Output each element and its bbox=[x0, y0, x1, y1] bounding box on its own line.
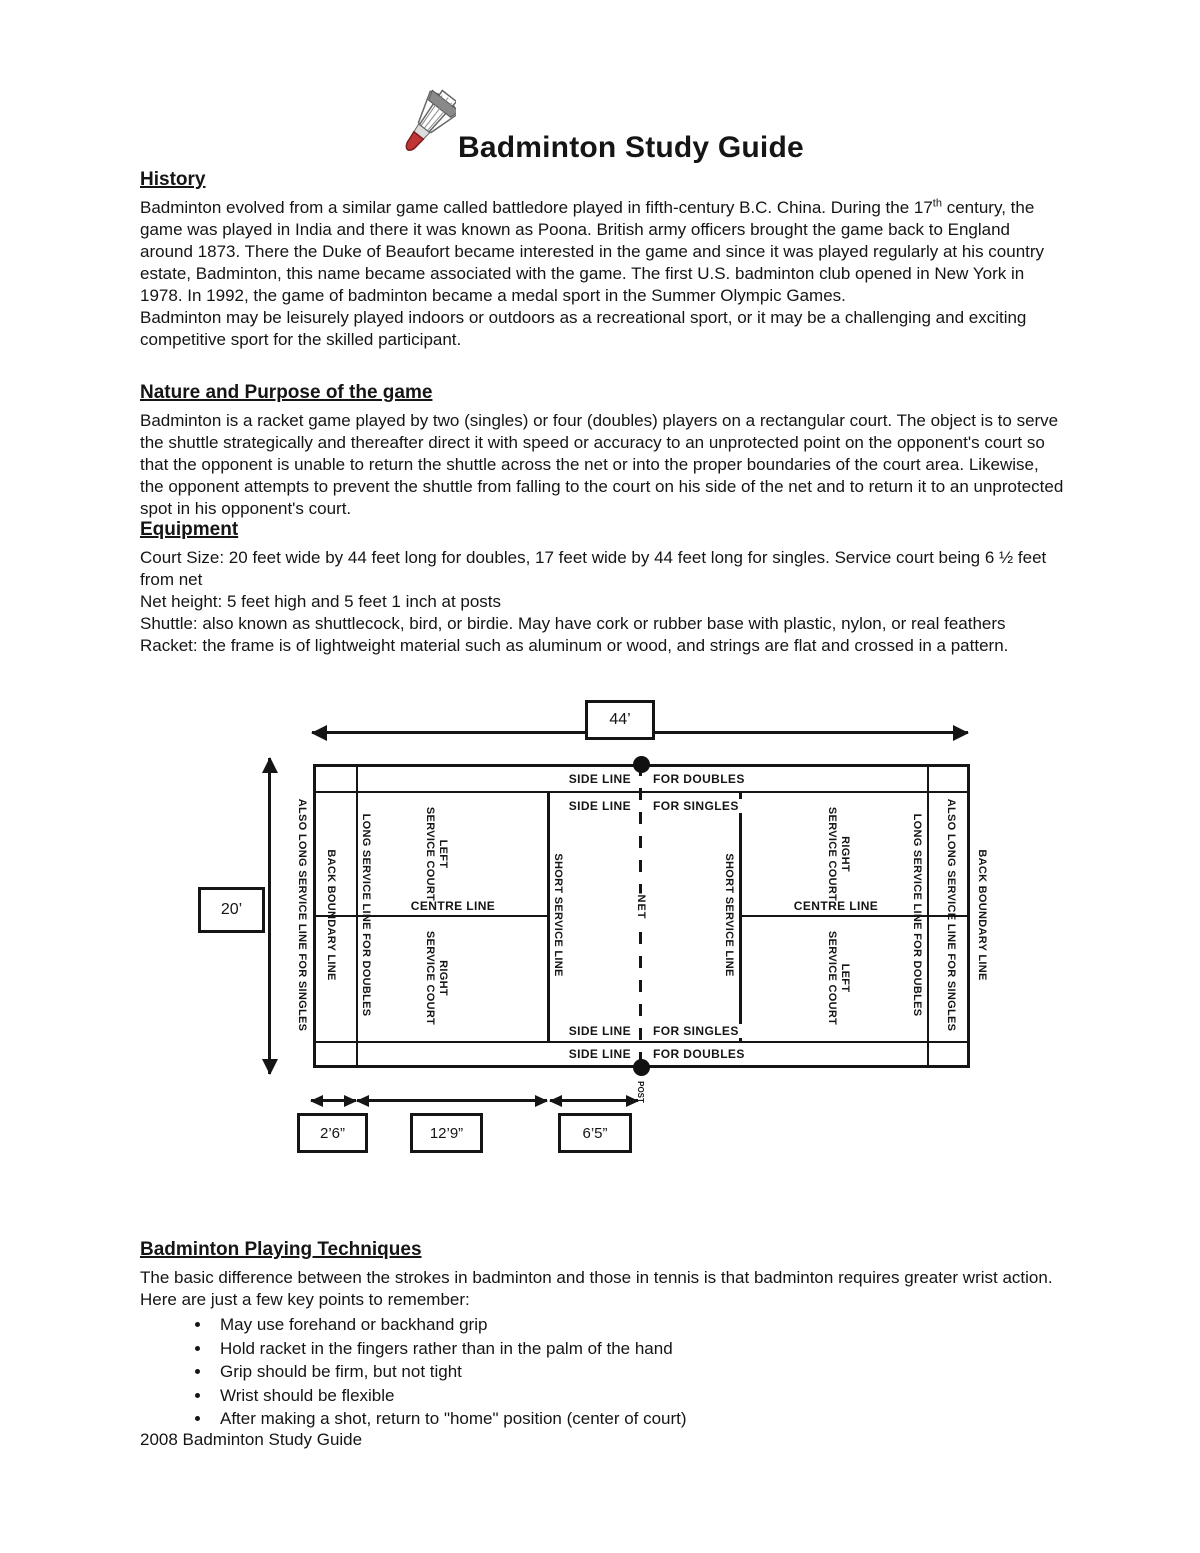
label-for-doubles-top: FOR DOUBLES bbox=[650, 772, 748, 786]
document-page: Badminton Study Guide History Badminton … bbox=[0, 0, 1200, 1553]
net-line bbox=[639, 764, 642, 1068]
equipment-shuttle: Shuttle: also known as shuttlecock, bird… bbox=[140, 613, 1064, 635]
technique-item: After making a shot, return to "home" po… bbox=[212, 1407, 1064, 1431]
label-also-long-service-right: ALSO LONG SERVICE LINE FOR SINGLES bbox=[945, 799, 957, 1031]
history-superscript: th bbox=[933, 197, 942, 209]
label-side-line-doubles-top: SIDE LINE bbox=[566, 772, 634, 786]
width-dimension-box: 20’ bbox=[198, 887, 265, 933]
service-length-dimension-arrow bbox=[357, 1099, 547, 1102]
label-service-court-word: SERVICE COURT bbox=[825, 807, 838, 901]
centre-line-left bbox=[313, 915, 549, 917]
history-paragraph-1: Badminton evolved from a similar game ca… bbox=[140, 197, 1064, 307]
label-also-long-service-left: ALSO LONG SERVICE LINE FOR SINGLES bbox=[296, 799, 308, 1031]
front-service-dimension-box: 6’5” bbox=[558, 1113, 632, 1153]
label-net: NET bbox=[630, 894, 652, 921]
net-post-top bbox=[633, 756, 650, 773]
long-service-line-doubles-right bbox=[927, 764, 929, 1068]
label-back-boundary-left: BACK BOUNDARY LINE bbox=[325, 849, 337, 980]
label-service-court-word: SERVICE COURT bbox=[825, 931, 838, 1025]
technique-item: Grip should be firm, but not tight bbox=[212, 1360, 1064, 1384]
technique-item: May use forehand or backhand grip bbox=[212, 1313, 1064, 1337]
section-equipment: Equipment Court Size: 20 feet wide by 44… bbox=[140, 518, 1064, 657]
label-left-service-court-lower: LEFT SERVICE COURT bbox=[825, 931, 851, 1025]
label-right-service-court-upper: RIGHT SERVICE COURT bbox=[825, 807, 851, 901]
nature-heading: Nature and Purpose of the game bbox=[140, 381, 1064, 405]
label-side-line-singles-top: SIDE LINE bbox=[566, 799, 634, 813]
label-left-word: LEFT bbox=[436, 807, 449, 901]
label-post: POST bbox=[636, 1081, 645, 1103]
label-long-service-right: LONG SERVICE LINE FOR DOUBLES bbox=[911, 814, 923, 1017]
length-dimension-value: 44’ bbox=[609, 711, 630, 729]
service-length-dimension-value: 12’9” bbox=[430, 1125, 463, 1142]
history-paragraph-2: Badminton may be leisurely played indoor… bbox=[140, 307, 1064, 351]
label-left-service-court-upper: LEFT SERVICE COURT bbox=[423, 807, 449, 901]
label-right-word: RIGHT bbox=[436, 931, 449, 1025]
net-post-bottom bbox=[633, 1059, 650, 1076]
service-length-dimension-box: 12’9” bbox=[410, 1113, 483, 1153]
technique-item: Hold racket in the fingers rather than i… bbox=[212, 1337, 1064, 1361]
back-alley-dimension-value: 2’6” bbox=[320, 1125, 345, 1142]
section-techniques: Badminton Playing Techniques The basic d… bbox=[140, 1238, 1064, 1431]
label-for-singles-bottom: FOR SINGLES bbox=[650, 1024, 742, 1038]
history-p1-text: Badminton evolved from a similar game ca… bbox=[140, 198, 933, 217]
side-line-singles-bottom bbox=[313, 1041, 970, 1043]
label-side-line-doubles-bottom: SIDE LINE bbox=[566, 1047, 634, 1061]
label-short-service-right: SHORT SERVICE LINE bbox=[723, 853, 735, 976]
nature-paragraph: Badminton is a racket game played by two… bbox=[140, 410, 1064, 520]
equipment-heading: Equipment bbox=[140, 518, 1064, 542]
label-short-service-left: SHORT SERVICE LINE bbox=[552, 853, 564, 976]
label-service-court-word: SERVICE COURT bbox=[423, 931, 436, 1025]
short-service-line-right bbox=[739, 791, 742, 1043]
shuttlecock-icon bbox=[396, 84, 456, 173]
front-service-dimension-value: 6’5” bbox=[582, 1125, 607, 1142]
label-left-word: LEFT bbox=[838, 931, 851, 1025]
history-heading: History bbox=[140, 168, 1064, 192]
label-for-doubles-bottom: FOR DOUBLES bbox=[650, 1047, 748, 1061]
long-service-line-doubles-left bbox=[356, 764, 358, 1068]
equipment-racket: Racket: the frame is of lightweight mate… bbox=[140, 635, 1064, 657]
equipment-net-height: Net height: 5 feet high and 5 feet 1 inc… bbox=[140, 591, 1064, 613]
label-centre-line-left: CENTRE LINE bbox=[411, 899, 495, 913]
label-right-word: RIGHT bbox=[838, 807, 851, 901]
label-back-boundary-right: BACK BOUNDARY LINE bbox=[976, 849, 988, 980]
techniques-list: May use forehand or backhand grip Hold r… bbox=[140, 1313, 1064, 1431]
court-outline bbox=[313, 764, 970, 1068]
label-for-singles-top: FOR SINGLES bbox=[650, 799, 742, 813]
label-service-court-word: SERVICE COURT bbox=[423, 807, 436, 901]
techniques-heading: Badminton Playing Techniques bbox=[140, 1238, 1064, 1262]
label-right-service-court-lower: RIGHT SERVICE COURT bbox=[423, 931, 449, 1025]
width-dimension-arrow bbox=[268, 758, 271, 1074]
section-nature: Nature and Purpose of the game Badminton… bbox=[140, 381, 1064, 520]
page-title: Badminton Study Guide bbox=[458, 131, 804, 165]
label-long-service-left: LONG SERVICE LINE FOR DOUBLES bbox=[360, 814, 372, 1017]
width-dimension-value: 20’ bbox=[221, 901, 242, 919]
label-centre-line-right: CENTRE LINE bbox=[794, 899, 878, 913]
footer-text: 2008 Badminton Study Guide bbox=[140, 1430, 362, 1450]
centre-line-right bbox=[740, 915, 970, 917]
back-alley-dimension-arrow bbox=[311, 1099, 356, 1102]
techniques-intro: The basic difference between the strokes… bbox=[140, 1267, 1064, 1311]
length-dimension-arrow bbox=[312, 731, 968, 734]
section-history: History Badminton evolved from a similar… bbox=[140, 168, 1064, 351]
short-service-line-left bbox=[547, 791, 550, 1043]
technique-item: Wrist should be flexible bbox=[212, 1384, 1064, 1408]
length-dimension-box: 44’ bbox=[585, 700, 655, 740]
label-side-line-singles-bottom: SIDE LINE bbox=[566, 1024, 634, 1038]
side-line-singles-top bbox=[313, 791, 970, 793]
equipment-court-size: Court Size: 20 feet wide by 44 feet long… bbox=[140, 547, 1064, 591]
front-service-dimension-arrow bbox=[550, 1099, 638, 1102]
back-alley-dimension-box: 2’6” bbox=[297, 1113, 368, 1153]
